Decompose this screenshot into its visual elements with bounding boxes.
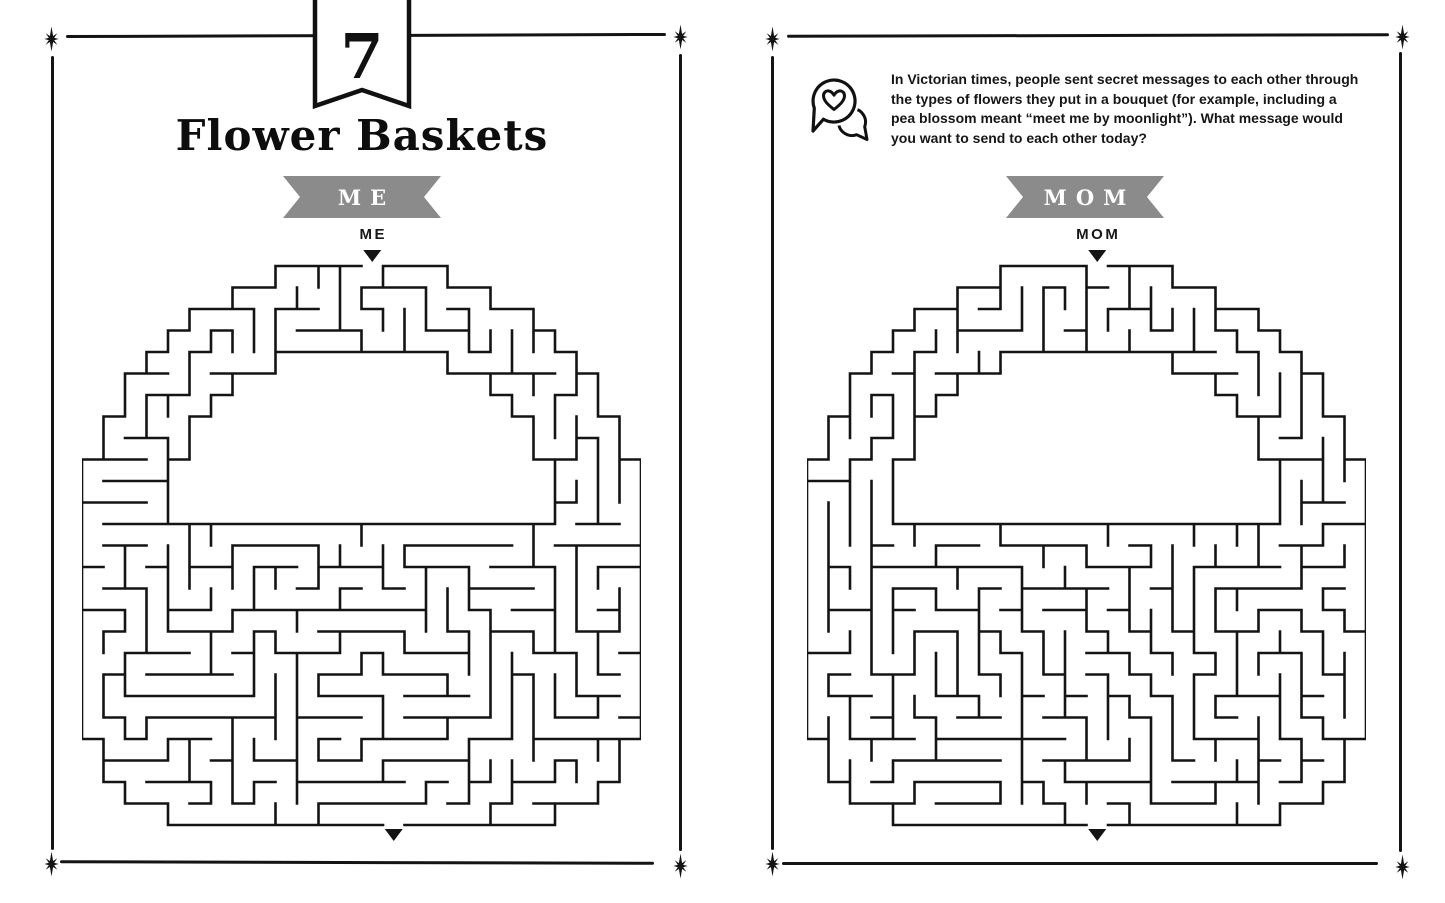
intro-text: In Victorian times, people sent secret m… (891, 70, 1358, 148)
flower-basket-maze-mom (807, 248, 1366, 843)
intro-line: In Victorian times, people sent secret m… (891, 70, 1358, 90)
frame-line-left (51, 56, 54, 850)
mom-banner: MOM (1006, 176, 1164, 218)
book-spread: 7 Flower Baskets ME ME In Victorian time… (0, 0, 1445, 903)
frame-line-right (679, 54, 682, 851)
exit-arrow-icon (1088, 829, 1106, 841)
chapter-ribbon: 7 (311, 0, 413, 115)
chapter-number: 7 (340, 20, 383, 93)
intro-line: the types of flowers they put in a bouqu… (891, 90, 1358, 110)
page-title: Flower Baskets (82, 115, 642, 157)
frame-line-top (787, 33, 1389, 38)
sparkle-star-icon (40, 25, 63, 53)
frame-line-bottom (782, 862, 1378, 865)
frame-line-right (1399, 52, 1402, 852)
mom-banner-label: MOM (1035, 185, 1136, 210)
sparkle-star-icon (40, 850, 63, 878)
sparkle-star-icon (669, 23, 692, 51)
intro-line: pea blossom meant “meet me by moonlight”… (891, 109, 1358, 129)
frame-line-left (771, 56, 774, 850)
frame-line-bottom (60, 860, 654, 865)
entry-arrow-icon (1088, 250, 1106, 262)
flower-basket-maze-me (82, 248, 641, 843)
sparkle-star-icon (1391, 23, 1414, 51)
exit-arrow-icon (385, 829, 403, 841)
sparkle-star-icon (1391, 853, 1414, 881)
me-banner-label: ME (329, 185, 395, 210)
maze-start-label: ME (357, 226, 387, 243)
entry-arrow-icon (363, 250, 381, 262)
sparkle-star-icon (669, 852, 692, 880)
heart-chat-icon (806, 74, 870, 144)
sparkle-star-icon (761, 850, 784, 878)
sparkle-star-icon (761, 25, 784, 53)
me-banner: ME (283, 176, 441, 218)
maze-start-label: MOM (1074, 226, 1121, 243)
intro-line: you want to send to each other today? (891, 129, 1358, 149)
